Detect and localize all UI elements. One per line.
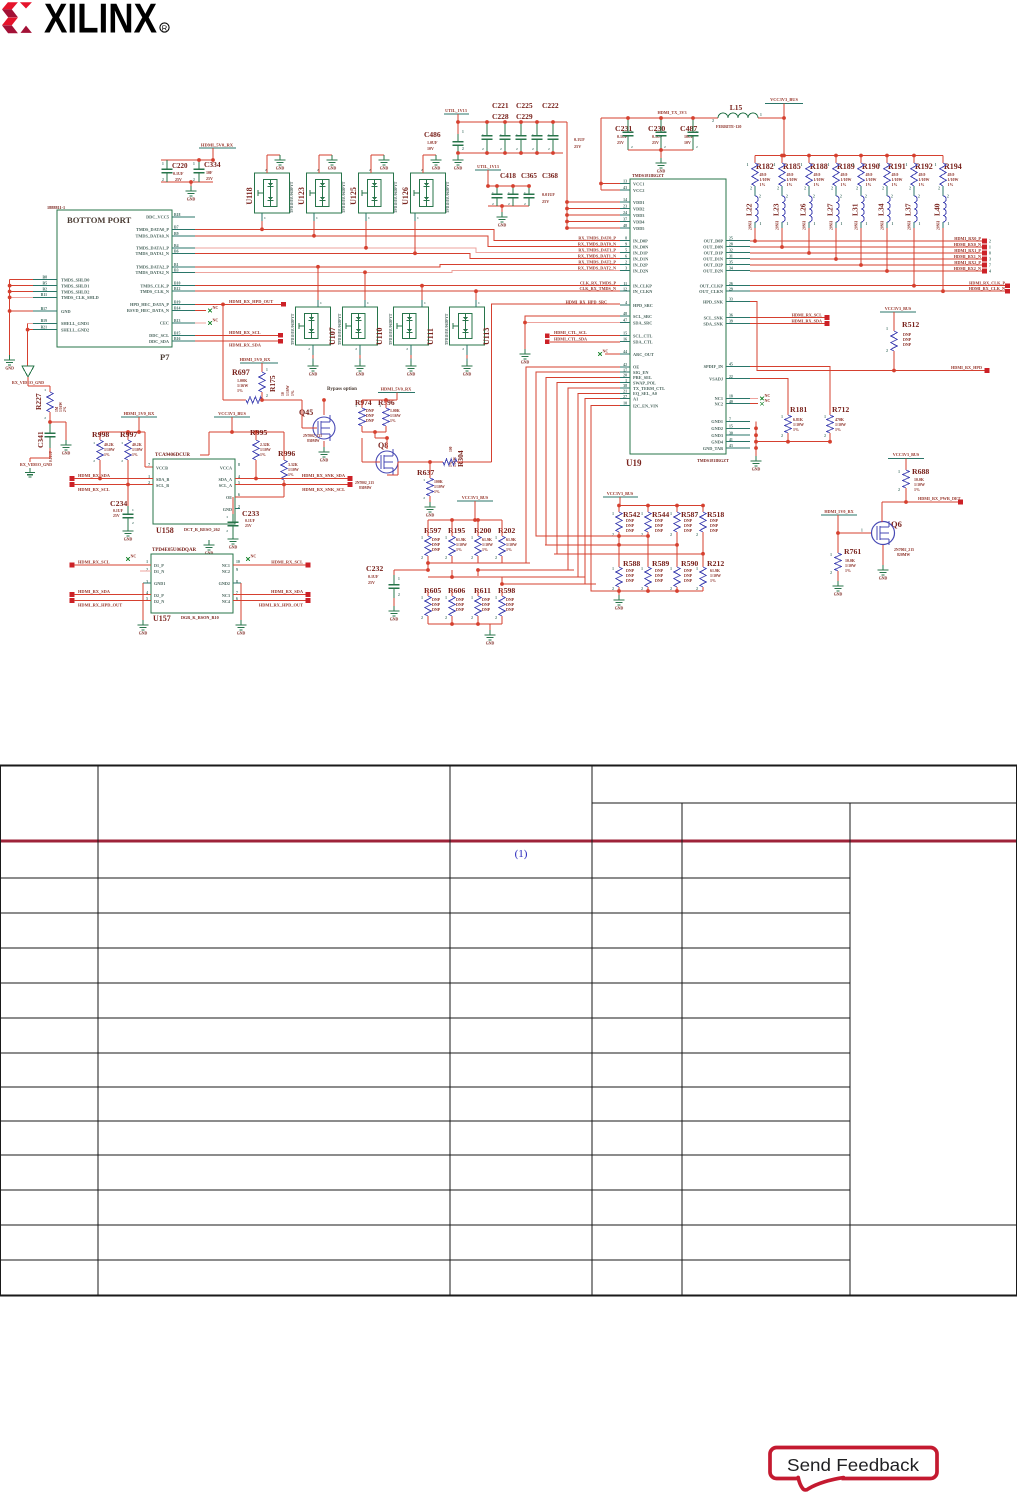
svg-text:2: 2 bbox=[495, 616, 497, 620]
svg-text:2: 2 bbox=[516, 147, 518, 151]
svg-text:1/10W: 1/10W bbox=[132, 448, 143, 452]
svg-text:GND2: GND2 bbox=[711, 426, 723, 431]
svg-text:VCC3V3_BUS: VCC3V3_BUS bbox=[218, 411, 246, 416]
svg-text:1/16W: 1/16W bbox=[286, 385, 290, 396]
svg-text:GND: GND bbox=[463, 373, 472, 377]
svg-text:2: 2 bbox=[355, 347, 357, 351]
svg-text:2: 2 bbox=[909, 187, 911, 191]
svg-text:RX_VIDEO_GND: RX_VIDEO_GND bbox=[20, 462, 52, 467]
svg-text:C341: C341 bbox=[36, 431, 45, 448]
svg-text:U110: U110 bbox=[375, 328, 384, 345]
svg-text:23: 23 bbox=[623, 205, 627, 209]
svg-text:2: 2 bbox=[524, 202, 526, 206]
svg-text:GND: GND bbox=[61, 309, 71, 314]
svg-text:1: 1 bbox=[801, 163, 803, 167]
svg-text:1%: 1% bbox=[914, 487, 920, 492]
svg-text:2: 2 bbox=[532, 147, 534, 151]
svg-text:TPD1E05U06DPYT: TPD1E05U06DPYT bbox=[445, 313, 449, 345]
svg-text:PRE_SEL: PRE_SEL bbox=[633, 375, 652, 380]
svg-text:R697: R697 bbox=[232, 368, 250, 377]
svg-text:D1_P: D1_P bbox=[154, 563, 164, 568]
svg-text:7: 7 bbox=[989, 264, 991, 268]
svg-text:DNP: DNP bbox=[366, 419, 375, 423]
svg-text:B1: B1 bbox=[174, 263, 179, 267]
svg-text:DCT_R_RESO_262: DCT_R_RESO_262 bbox=[184, 527, 220, 532]
svg-text:GND: GND bbox=[309, 373, 318, 377]
svg-text:2: 2 bbox=[696, 587, 698, 591]
svg-text:2: 2 bbox=[712, 119, 714, 123]
svg-text:2: 2 bbox=[266, 394, 268, 398]
svg-text:VCC3V3_BUS: VCC3V3_BUS bbox=[607, 491, 634, 496]
svg-text:B12: B12 bbox=[174, 287, 180, 291]
svg-text:16: 16 bbox=[623, 338, 627, 342]
svg-text:BOTTOM PORT: BOTTOM PORT bbox=[67, 215, 132, 225]
svg-text:B19: B19 bbox=[41, 319, 47, 323]
svg-text:TMDS_DATA2_P: TMDS_DATA2_P bbox=[136, 264, 169, 269]
svg-text:13: 13 bbox=[623, 180, 627, 184]
svg-text:1: 1 bbox=[781, 415, 783, 419]
svg-text:VCC3V3_BUS: VCC3V3_BUS bbox=[770, 97, 798, 102]
svg-text:C365: C365 bbox=[521, 172, 537, 180]
svg-text:2: 2 bbox=[462, 347, 464, 351]
svg-text:RX_TMDS_DAT1_P: RX_TMDS_DAT1_P bbox=[578, 248, 616, 253]
svg-text:DNP: DNP bbox=[366, 409, 375, 413]
svg-text:1: 1 bbox=[641, 512, 643, 516]
svg-text:GND: GND bbox=[380, 167, 389, 171]
svg-text:IN_D0P: IN_D0P bbox=[633, 238, 648, 243]
svg-text:1: 1 bbox=[226, 515, 228, 519]
svg-text:1%: 1% bbox=[793, 427, 799, 432]
svg-text:40.2K: 40.2K bbox=[132, 443, 142, 447]
svg-text:1: 1 bbox=[508, 191, 510, 195]
svg-text:SCL_SNK: SCL_SNK bbox=[704, 315, 724, 320]
svg-text:C486: C486 bbox=[424, 130, 441, 139]
svg-text:31: 31 bbox=[729, 255, 733, 259]
svg-text:HDMI_RX_HPD_OUT: HDMI_RX_HPD_OUT bbox=[229, 299, 273, 304]
svg-text:1: 1 bbox=[828, 163, 830, 167]
svg-text:830MW: 830MW bbox=[359, 486, 372, 490]
svg-text:NC: NC bbox=[251, 554, 257, 559]
svg-text:2: 2 bbox=[308, 347, 310, 351]
svg-text:2: 2 bbox=[193, 178, 195, 182]
svg-text:C229: C229 bbox=[516, 112, 533, 121]
svg-text:(1): (1) bbox=[515, 848, 528, 860]
svg-text:P7: P7 bbox=[160, 352, 170, 362]
svg-text:TPD1E05U06DPYT: TPD1E05U06DPYT bbox=[290, 181, 294, 213]
svg-text:1: 1 bbox=[774, 163, 776, 167]
svg-text:20NH: 20NH bbox=[803, 221, 807, 230]
svg-text:10: 10 bbox=[236, 560, 240, 564]
svg-text:GND: GND bbox=[62, 452, 71, 456]
svg-text:25V: 25V bbox=[617, 140, 624, 145]
svg-text:SHELL_GND2: SHELL_GND2 bbox=[61, 327, 89, 332]
svg-text:GND: GND bbox=[498, 224, 507, 228]
svg-text:36: 36 bbox=[729, 314, 733, 318]
svg-text:6: 6 bbox=[238, 493, 240, 497]
svg-text:R598: R598 bbox=[498, 586, 515, 595]
svg-text:NC2: NC2 bbox=[222, 569, 230, 574]
svg-text:DNP: DNP bbox=[684, 578, 693, 583]
svg-text:HDMI_RX_CLK_N: HDMI_RX_CLK_N bbox=[969, 286, 1005, 291]
svg-text:2: 2 bbox=[462, 147, 464, 151]
svg-text:1888811-1: 1888811-1 bbox=[47, 205, 65, 210]
svg-text:GND: GND bbox=[615, 607, 624, 611]
svg-text:OUT_D0P: OUT_D0P bbox=[704, 238, 724, 243]
svg-text:U107: U107 bbox=[328, 327, 337, 345]
svg-text:1: 1 bbox=[948, 222, 950, 226]
svg-text:SDA_SNK: SDA_SNK bbox=[703, 321, 723, 326]
svg-text:RX_TMDS_DAT0_N: RX_TMDS_DAT0_N bbox=[578, 242, 616, 247]
svg-text:1: 1 bbox=[193, 162, 195, 166]
svg-text:HDMI_RX1_P: HDMI_RX1_P bbox=[954, 248, 981, 253]
svg-text:IN_CLKP: IN_CLKP bbox=[633, 284, 652, 289]
svg-text:TMDS_SHLD0: TMDS_SHLD0 bbox=[61, 278, 89, 283]
svg-text:GND1: GND1 bbox=[711, 419, 723, 424]
svg-text:HDMI_RX_HPD_OUT: HDMI_RX_HPD_OUT bbox=[78, 603, 122, 608]
svg-text:B4: B4 bbox=[174, 244, 179, 248]
svg-text:17: 17 bbox=[623, 368, 627, 372]
svg-text:14: 14 bbox=[623, 198, 627, 202]
svg-text:B2: B2 bbox=[43, 287, 48, 291]
svg-text:25V: 25V bbox=[574, 144, 581, 149]
svg-text:1: 1 bbox=[787, 222, 789, 226]
svg-text:0.1UF: 0.1UF bbox=[617, 134, 628, 139]
svg-text:NC: NC bbox=[213, 318, 219, 323]
svg-text:1: 1 bbox=[670, 567, 672, 571]
svg-text:RSVD_HEC_DATA_N: RSVD_HEC_DATA_N bbox=[127, 308, 170, 313]
svg-text:TMDS181IRGZT: TMDS181IRGZT bbox=[632, 173, 664, 178]
svg-text:R: R bbox=[162, 23, 168, 32]
svg-text:RX_TMDS_DAT1_N: RX_TMDS_DAT1_N bbox=[578, 254, 616, 259]
svg-text:1: 1 bbox=[861, 529, 863, 533]
svg-text:GND: GND bbox=[229, 546, 238, 550]
svg-text:HDMI_RX_SNK_SDA: HDMI_RX_SNK_SDA bbox=[302, 473, 346, 478]
svg-text:R688: R688 bbox=[912, 467, 929, 476]
svg-text:25V: 25V bbox=[652, 140, 659, 145]
svg-text:25V: 25V bbox=[542, 199, 549, 204]
svg-text:R995: R995 bbox=[250, 428, 267, 437]
svg-text:2: 2 bbox=[317, 168, 319, 172]
svg-text:OUT_CLKP: OUT_CLKP bbox=[700, 284, 724, 289]
svg-text:B18: B18 bbox=[174, 213, 180, 217]
svg-text:2: 2 bbox=[759, 195, 761, 199]
svg-text:10: 10 bbox=[623, 402, 627, 406]
svg-text:2: 2 bbox=[696, 145, 698, 149]
svg-text:L23: L23 bbox=[772, 203, 781, 216]
svg-text:1: 1 bbox=[516, 133, 518, 137]
svg-text:45: 45 bbox=[729, 363, 733, 367]
svg-text:VDD3: VDD3 bbox=[633, 213, 644, 218]
svg-text:TMDS_DATA0_N: TMDS_DATA0_N bbox=[136, 233, 170, 238]
svg-text:1: 1 bbox=[892, 222, 894, 226]
svg-text:L37: L37 bbox=[904, 203, 913, 216]
svg-text:1/10W: 1/10W bbox=[260, 448, 271, 452]
svg-text:1: 1 bbox=[866, 222, 868, 226]
svg-text:VSADJ: VSADJ bbox=[709, 376, 724, 381]
svg-text:TMDS_DATA2_N: TMDS_DATA2_N bbox=[136, 270, 170, 275]
svg-text:2: 2 bbox=[824, 434, 826, 438]
svg-text:GND: GND bbox=[276, 167, 285, 171]
svg-text:R192: R192 bbox=[915, 162, 933, 171]
svg-text:1: 1 bbox=[548, 133, 550, 137]
svg-text:2N7002_215: 2N7002_215 bbox=[894, 548, 914, 552]
svg-text:HPD_SNK: HPD_SNK bbox=[703, 299, 724, 304]
svg-text:B8: B8 bbox=[43, 276, 48, 280]
svg-text:OE: OE bbox=[226, 495, 232, 500]
svg-text:VCCB: VCCB bbox=[156, 466, 168, 471]
svg-text:HDMI_RX_SCL: HDMI_RX_SCL bbox=[78, 560, 110, 565]
svg-text:XILINX: XILINX bbox=[44, 0, 157, 42]
svg-text:R606: R606 bbox=[448, 586, 465, 595]
svg-text:2.32K: 2.32K bbox=[260, 443, 270, 447]
svg-text:B11: B11 bbox=[41, 293, 47, 297]
svg-text:1: 1 bbox=[886, 327, 888, 331]
svg-text:2: 2 bbox=[813, 195, 815, 199]
svg-text:1%: 1% bbox=[866, 182, 872, 187]
svg-text:R998: R998 bbox=[92, 430, 109, 439]
svg-text:28: 28 bbox=[729, 243, 733, 247]
svg-text:R227: R227 bbox=[34, 393, 43, 410]
svg-text:HDMI_RX0_P: HDMI_RX0_P bbox=[954, 236, 981, 241]
svg-text:DNP: DNP bbox=[432, 607, 441, 612]
svg-text:UTIL_1V13: UTIL_1V13 bbox=[445, 108, 467, 113]
svg-text:GND: GND bbox=[237, 632, 246, 636]
svg-text:HDMI_RX_CLK_P: HDMI_RX_CLK_P bbox=[969, 281, 1005, 286]
svg-text:GND1: GND1 bbox=[154, 581, 165, 586]
svg-text:C221: C221 bbox=[492, 101, 509, 110]
svg-text:20NH: 20NH bbox=[855, 221, 859, 230]
svg-text:1: 1 bbox=[471, 596, 473, 600]
svg-text:R304: R304 bbox=[456, 450, 465, 467]
svg-text:1: 1 bbox=[423, 478, 425, 482]
svg-text:GND: GND bbox=[139, 632, 148, 636]
svg-text:1: 1 bbox=[482, 133, 484, 137]
svg-text:B15: B15 bbox=[174, 331, 180, 335]
svg-text:DDC_SDA: DDC_SDA bbox=[149, 339, 170, 344]
svg-text:GND: GND bbox=[454, 167, 463, 171]
svg-text:R190: R190 bbox=[862, 162, 880, 171]
svg-text:HDMI_RX_HPD_OUT: HDMI_RX_HPD_OUT bbox=[259, 603, 303, 608]
svg-text:TMDS_SHLD1: TMDS_SHLD1 bbox=[61, 283, 89, 288]
svg-text:R191: R191 bbox=[888, 162, 906, 171]
svg-text:D2_N: D2_N bbox=[154, 599, 164, 604]
svg-text:1: 1 bbox=[612, 512, 614, 516]
svg-text:2: 2 bbox=[421, 616, 423, 620]
svg-text:DNP: DNP bbox=[684, 528, 693, 533]
svg-text:2: 2 bbox=[781, 434, 783, 438]
svg-text:1: 1 bbox=[495, 596, 497, 600]
svg-text:HDMI_RX_SDA: HDMI_RX_SDA bbox=[78, 473, 111, 478]
svg-text:OUT_D1N: OUT_D1N bbox=[703, 256, 724, 261]
svg-text:R996: R996 bbox=[278, 449, 295, 458]
svg-text:2: 2 bbox=[947, 195, 949, 199]
svg-text:R605: R605 bbox=[424, 586, 441, 595]
svg-text:C220: C220 bbox=[172, 162, 188, 170]
svg-text:HDMI_RX_SCL: HDMI_RX_SCL bbox=[78, 487, 110, 492]
svg-text:B17: B17 bbox=[41, 307, 47, 311]
svg-text:15: 15 bbox=[729, 425, 733, 429]
svg-text:DNP: DNP bbox=[432, 547, 441, 552]
svg-text:GND: GND bbox=[223, 507, 232, 512]
svg-text:48: 48 bbox=[623, 312, 627, 316]
svg-text:HDMI_RX_SCL: HDMI_RX_SCL bbox=[792, 312, 822, 317]
svg-text:2: 2 bbox=[471, 616, 473, 620]
svg-text:27: 27 bbox=[623, 395, 627, 399]
svg-text:1: 1 bbox=[696, 130, 698, 134]
svg-text:2: 2 bbox=[121, 459, 123, 463]
svg-text:I2C_EN_VIN: I2C_EN_VIN bbox=[633, 403, 659, 408]
svg-text:C225: C225 bbox=[516, 101, 533, 110]
svg-text:2: 2 bbox=[482, 147, 484, 151]
svg-text:HDMI_RX2_P: HDMI_RX2_P bbox=[954, 260, 981, 265]
svg-text:11: 11 bbox=[623, 282, 627, 286]
svg-text:UTIL_1V13: UTIL_1V13 bbox=[477, 164, 499, 169]
svg-text:37: 37 bbox=[623, 218, 627, 222]
svg-text:L27: L27 bbox=[826, 203, 835, 216]
svg-text:2: 2 bbox=[162, 178, 164, 182]
svg-text:RX_TMDS_DAT0_P: RX_TMDS_DAT0_P bbox=[578, 236, 616, 241]
svg-text:TPD4E05U06DQAR: TPD4E05U06DQAR bbox=[152, 548, 197, 553]
svg-text:C418: C418 bbox=[500, 172, 516, 180]
svg-text:1: 1 bbox=[664, 130, 666, 134]
svg-text:2: 2 bbox=[670, 587, 672, 591]
svg-text:100: 100 bbox=[449, 446, 453, 452]
svg-text:GND: GND bbox=[426, 514, 435, 518]
svg-text:HDMI_RX0_N: HDMI_RX0_N bbox=[954, 242, 981, 247]
svg-text:2: 2 bbox=[406, 347, 408, 351]
svg-text:DNP: DNP bbox=[710, 528, 719, 533]
svg-text:C222: C222 bbox=[542, 101, 559, 110]
svg-text:8: 8 bbox=[625, 237, 627, 241]
svg-text:SDA_CTL: SDA_CTL bbox=[633, 339, 653, 344]
svg-text:1: 1 bbox=[760, 222, 762, 226]
svg-text:B19: B19 bbox=[174, 300, 180, 304]
svg-text:1: 1 bbox=[471, 536, 473, 540]
svg-text:TMDS181IRGZT: TMDS181IRGZT bbox=[697, 458, 729, 463]
svg-text:830MW: 830MW bbox=[307, 439, 320, 443]
svg-text:1: 1 bbox=[906, 163, 908, 167]
svg-text:A1: A1 bbox=[633, 396, 638, 401]
svg-text:8: 8 bbox=[989, 252, 991, 256]
svg-text:C232: C232 bbox=[366, 564, 383, 573]
svg-text:B5: B5 bbox=[43, 281, 48, 285]
svg-text:GND: GND bbox=[486, 642, 495, 646]
svg-text:1: 1 bbox=[747, 163, 749, 167]
svg-text:2: 2 bbox=[612, 587, 614, 591]
svg-text:R194: R194 bbox=[944, 162, 962, 171]
svg-text:15: 15 bbox=[623, 332, 627, 336]
svg-text:10F: 10F bbox=[206, 170, 213, 175]
svg-text:DNP: DNP bbox=[482, 607, 491, 612]
svg-text:ARC_OUT: ARC_OUT bbox=[633, 352, 654, 357]
svg-text:HDMI_RX_SNK_SCL: HDMI_RX_SNK_SCL bbox=[302, 487, 345, 492]
svg-text:1: 1 bbox=[398, 577, 400, 581]
svg-text:1/10W: 1/10W bbox=[434, 485, 445, 489]
svg-text:20NH: 20NH bbox=[830, 221, 834, 230]
svg-text:1: 1 bbox=[935, 163, 937, 167]
svg-text:HDMI_RX2_N: HDMI_RX2_N bbox=[954, 266, 981, 271]
svg-text:1%: 1% bbox=[948, 182, 954, 187]
svg-text:R512: R512 bbox=[902, 320, 919, 329]
svg-text:HDMI_RX_SCL: HDMI_RX_SCL bbox=[229, 330, 261, 335]
svg-text:U126: U126 bbox=[401, 187, 410, 205]
svg-text:0.1UF: 0.1UF bbox=[368, 574, 379, 579]
svg-text:GND: GND bbox=[328, 167, 337, 171]
svg-text:R589: R589 bbox=[652, 559, 669, 568]
svg-text:1: 1 bbox=[367, 301, 369, 305]
svg-text:HDMI_5V0_RX: HDMI_5V0_RX bbox=[124, 411, 156, 416]
svg-text:2N7002_215: 2N7002_215 bbox=[303, 434, 322, 438]
svg-text:VDD4: VDD4 bbox=[633, 219, 645, 224]
svg-text:5: 5 bbox=[625, 249, 627, 253]
svg-text:2: 2 bbox=[804, 187, 806, 191]
svg-text:IN_D1P: IN_D1P bbox=[633, 250, 648, 255]
svg-text:34: 34 bbox=[729, 267, 733, 271]
svg-text:0.1UF: 0.1UF bbox=[113, 509, 124, 513]
svg-text:1: 1 bbox=[93, 441, 95, 445]
svg-text:SDA_A: SDA_A bbox=[219, 477, 233, 482]
svg-text:GND: GND bbox=[834, 593, 843, 597]
svg-text:IN_D2N: IN_D2N bbox=[633, 268, 649, 273]
svg-text:IN_D1N: IN_D1N bbox=[633, 256, 649, 261]
svg-text:1%: 1% bbox=[104, 453, 110, 457]
svg-text:L15: L15 bbox=[730, 103, 743, 112]
svg-text:12: 12 bbox=[623, 287, 627, 291]
svg-text:9: 9 bbox=[236, 568, 238, 572]
svg-text:NC1: NC1 bbox=[715, 396, 723, 401]
svg-text:TX_TERM_CTL: TX_TERM_CTL bbox=[633, 386, 665, 391]
svg-text:GND: GND bbox=[521, 361, 530, 365]
svg-text:NC: NC bbox=[765, 393, 771, 398]
svg-text:GND: GND bbox=[879, 577, 888, 581]
svg-text:SCL_A: SCL_A bbox=[219, 483, 232, 488]
svg-text:DNP: DNP bbox=[456, 607, 465, 612]
svg-text:25V: 25V bbox=[368, 580, 375, 585]
svg-text:1: 1 bbox=[495, 536, 497, 540]
svg-text:2: 2 bbox=[750, 187, 752, 191]
svg-text:25V: 25V bbox=[175, 177, 182, 182]
svg-text:GND: GND bbox=[432, 167, 441, 171]
svg-text:NC3: NC3 bbox=[222, 593, 230, 598]
svg-text:R202: R202 bbox=[498, 526, 515, 535]
svg-text:30: 30 bbox=[729, 431, 733, 435]
svg-text:GND4: GND4 bbox=[711, 440, 724, 445]
svg-text:TPD1E05U06DPYT: TPD1E05U06DPYT bbox=[338, 313, 342, 345]
svg-text:4: 4 bbox=[625, 301, 627, 305]
svg-text:B14: B14 bbox=[174, 307, 180, 311]
svg-text:1: 1 bbox=[696, 567, 698, 571]
svg-text:1: 1 bbox=[424, 301, 426, 305]
svg-text:OUT_D0N: OUT_D0N bbox=[703, 244, 724, 249]
svg-text:1: 1 bbox=[162, 162, 164, 166]
svg-text:820MW: 820MW bbox=[897, 553, 910, 557]
svg-text:1: 1 bbox=[898, 470, 900, 474]
svg-text:Q45: Q45 bbox=[299, 408, 313, 417]
svg-text:48: 48 bbox=[623, 224, 627, 228]
svg-text:L22: L22 bbox=[745, 203, 754, 216]
svg-text:1%: 1% bbox=[390, 419, 396, 423]
svg-text:OUT_CLKN: OUT_CLKN bbox=[699, 289, 724, 294]
svg-text:1: 1 bbox=[492, 191, 494, 195]
svg-text:B21: B21 bbox=[41, 325, 47, 329]
svg-text:1: 1 bbox=[641, 567, 643, 571]
svg-text:1: 1 bbox=[524, 191, 526, 195]
svg-text:2: 2 bbox=[664, 145, 666, 149]
svg-text:SCL_SRC: SCL_SRC bbox=[633, 314, 652, 319]
svg-text:SWAP_POL: SWAP_POL bbox=[633, 381, 656, 386]
svg-text:DGR_K_RSON_R10: DGR_K_RSON_R10 bbox=[181, 615, 219, 620]
svg-text:4: 4 bbox=[989, 270, 991, 274]
